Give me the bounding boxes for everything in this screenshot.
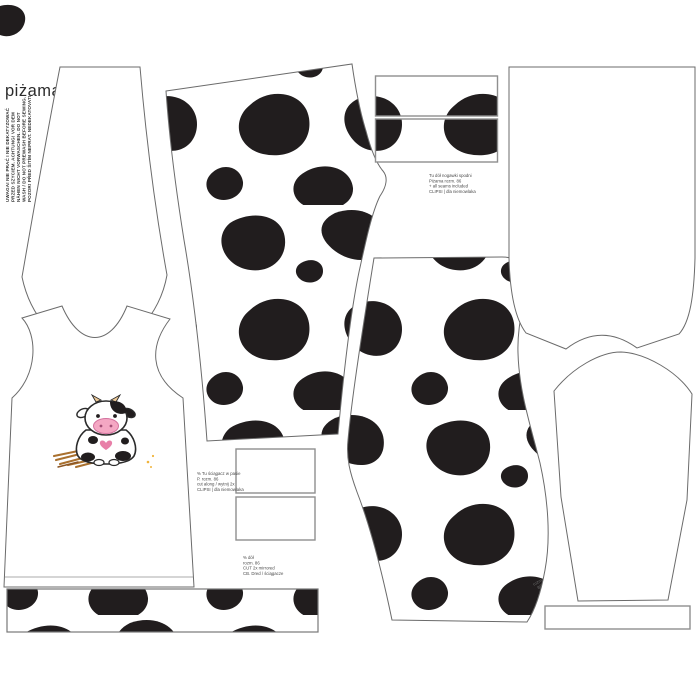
pant-label-line: CLIPSI | dla niemowlaka [429, 189, 476, 194]
waistband-label-line: cut along / wytnij 2x [197, 482, 235, 487]
cuff-rectangle-top [236, 449, 315, 493]
care-warning-line: WASH / DO NOT PREWASH BEFORE SEWING. [22, 97, 27, 202]
waistband-strip-top [376, 76, 498, 116]
cuff-label-line: rozm. 86 [243, 560, 260, 565]
bodice-back-piece [22, 67, 167, 350]
care-warning-line: PRZED SZYCIEM. ACHTUNG! VOR DEM [11, 112, 16, 202]
care-warning-line: NÄHEN NICHT VORWASCHEN. DO NOT [15, 112, 21, 202]
cow-hoof [109, 460, 119, 466]
cow-hoof [94, 460, 104, 466]
cuff-label-line: CB. Dred / ściągacze [243, 571, 284, 576]
waistband-label-line: % Tu ściągacz w pasie [197, 471, 241, 476]
cow-muzzle [94, 419, 119, 434]
care-warning-block: UWAGA! NIE PRAĆ I NIE DEKATYZOWAĆ PRZED … [3, 95, 32, 202]
cow-eye [96, 414, 100, 418]
cow-nostril [110, 425, 113, 428]
pant-label-line: Piżama rozm. 86 [429, 178, 462, 183]
corner-cow-spot [0, 5, 25, 36]
waistband-label-line: CLIPSI | dla niemowlaka [197, 487, 244, 492]
band-strip-rectangle [545, 606, 690, 629]
pant-leg-front-piece [166, 64, 386, 441]
cuff-label-line: % dół [243, 555, 254, 560]
pant-label-block: Tu dół nogawki spodni Piżama rozm. 86 + … [429, 173, 476, 194]
waistband-strip-bottom [376, 119, 498, 162]
white-pant-piece-lower [554, 352, 692, 601]
cuff-label-block: % dół rozm. 86 CUT 2x mirrored CB. Dred … [243, 555, 284, 576]
cuff-rectangle-bottom [236, 497, 315, 540]
cow-eye [113, 414, 117, 418]
pant-label-line: Tu dół nogawki spodni [429, 173, 472, 178]
hem-strip-cow-print [7, 589, 318, 632]
pant-label-line: + all seams included [429, 184, 469, 189]
white-pant-piece-upper [509, 67, 695, 349]
fabric-panel: piżama UWAGA! NIE PRAĆ I NIE DEKATYZOWAĆ… [0, 0, 700, 700]
panel-title: piżama [5, 82, 62, 100]
care-warning-line: POZOR! PŘED ŠITÍM NEPRAT. NEDEKATOVAT! [25, 95, 32, 202]
pattern-layout-svg: piżama UWAGA! NIE PRAĆ I NIE DEKATYZOWAĆ… [0, 0, 700, 700]
waistband-label-line: P. rozm. 86 [197, 476, 219, 481]
cow-nostril [100, 425, 103, 428]
care-warning-line: UWAGA! NIE PRAĆ I NIE DEKATYZOWAĆ [3, 107, 10, 202]
cuff-label-line: CUT 2x mirrored [243, 566, 275, 571]
